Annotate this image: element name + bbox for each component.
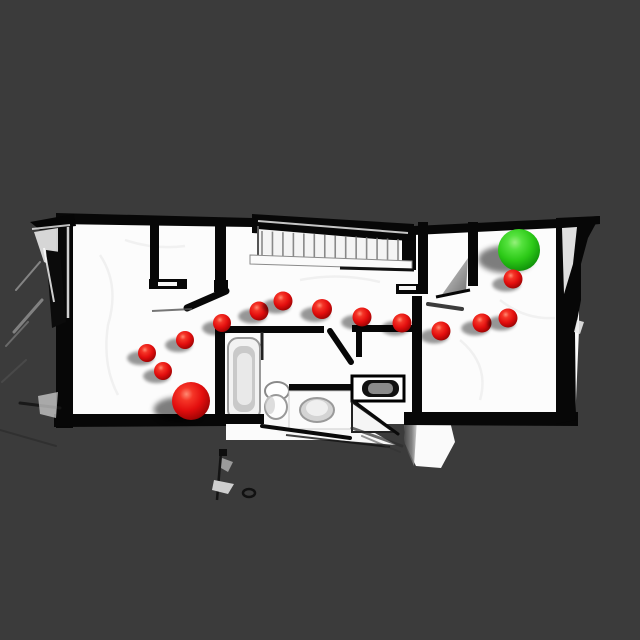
waypoint-sphere xyxy=(138,344,156,362)
waypoint-sphere xyxy=(176,331,194,349)
scene-canvas[interactable] xyxy=(0,0,640,640)
wall-closet-right xyxy=(468,222,478,286)
wall-bottom-right xyxy=(404,412,578,426)
wall-bathroom-left xyxy=(215,320,225,424)
viewport[interactable] xyxy=(0,0,640,640)
waypoint-sphere xyxy=(213,314,231,332)
wall-hall-right xyxy=(215,222,226,284)
start-sphere xyxy=(172,382,210,420)
wall-hall-left xyxy=(150,222,159,284)
waypoint-sphere xyxy=(274,292,293,311)
waypoint-sphere xyxy=(353,308,372,327)
debris-dot xyxy=(243,489,255,497)
wall-bathroom-top xyxy=(224,326,324,333)
waypoint-sphere xyxy=(504,270,523,289)
wall-closet-left xyxy=(418,222,428,292)
goal-sphere xyxy=(498,229,540,271)
waypoint-sphere xyxy=(312,299,332,319)
waypoint-sphere xyxy=(154,362,172,380)
waypoint-sphere xyxy=(432,322,451,341)
wall-right-room-left xyxy=(412,296,422,418)
vanity-edge xyxy=(289,384,353,391)
waypoint-sphere xyxy=(499,309,518,328)
waypoint-sphere xyxy=(393,314,412,333)
